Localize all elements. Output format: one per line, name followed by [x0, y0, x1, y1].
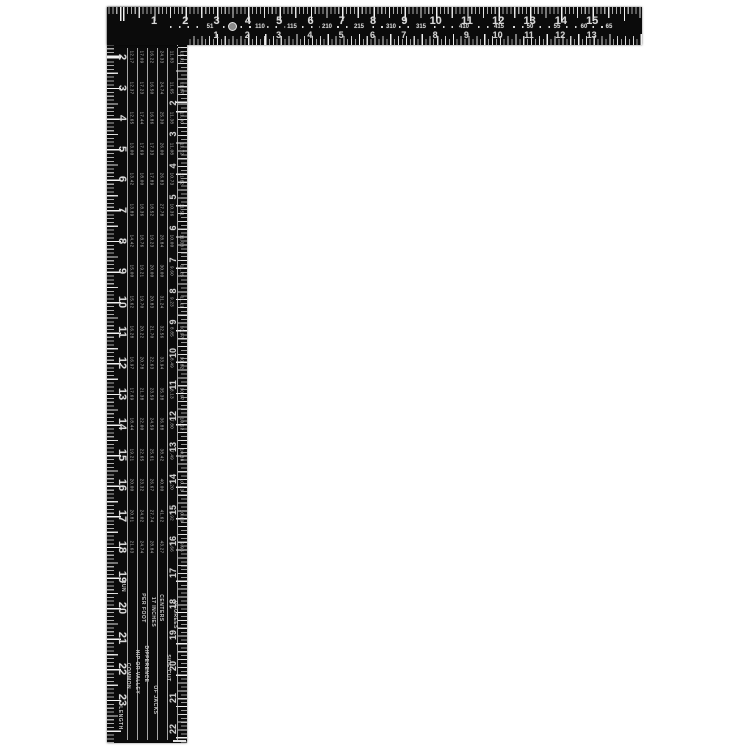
rafter-table-value: 10.09: [180, 510, 185, 523]
rafter-table-value: 32.56: [160, 326, 165, 339]
rafter-table-value: 21.70: [150, 326, 155, 339]
rafter-table-value: 17.33: [150, 142, 155, 155]
rafter-table-value: 17.89: [150, 173, 155, 186]
v-outer-inch-label: 9: [116, 268, 128, 274]
h-inner-inch-label: 1: [213, 30, 218, 40]
h-outer-inch-label: 2: [182, 15, 188, 27]
v-inner-inch-label: 3: [168, 132, 178, 137]
h-outer-inch-label: 6: [307, 15, 313, 27]
rafter-table-value: 6.66: [170, 542, 175, 552]
rafter-table-value: 28.84: [160, 234, 165, 247]
v-inner-inch-label: 11: [168, 380, 178, 390]
horizontal-arm: 123456789101112131415 511101152102153103…: [107, 7, 642, 45]
rafter-table-value: 12.65: [130, 112, 135, 125]
rafter-table-value: 33.94: [160, 357, 165, 370]
v-outer-inch-label: 12: [116, 357, 128, 369]
top-edge-fine-ticks: [107, 7, 642, 14]
rafter-table-heading: 17 INCHES: [150, 597, 156, 627]
rafter-table-heading: SIDE CUT: [165, 654, 171, 681]
rafter-table-value: 19.21: [140, 265, 145, 278]
rafter-table-value: 40.00: [160, 479, 165, 492]
h-middle-band-number: 210: [320, 24, 334, 30]
rafter-table-value: 16.97: [130, 357, 135, 370]
rafter-table-heading: CENTERS: [158, 594, 164, 621]
rafter-table-value: 11.25: [180, 265, 185, 277]
rafter-table-heading: LENGTH: [117, 706, 123, 730]
rafter-table-value: 16.22: [150, 51, 155, 64]
rafter-table-value: 30.00: [160, 265, 165, 278]
rafter-table-value: 41.62: [160, 510, 165, 523]
rafter-table-value: 21.38: [140, 387, 145, 400]
rafter-table-heading: PER FOOT: [140, 593, 146, 623]
h-outer-inch-label: 8: [370, 15, 376, 27]
rafter-table-value: 20.83: [150, 295, 155, 308]
rafter-table-value: 10.82: [180, 357, 185, 370]
h-inner-inch-label: 2: [245, 30, 250, 40]
rafter-table-heading: OF JACKS: [152, 685, 158, 714]
rafter-table-value: 26.67: [150, 479, 155, 492]
v-outer-inch-label: 7: [116, 207, 128, 213]
v-outer-inch-label: 17: [116, 510, 128, 522]
rafter-table-value: 11.38: [180, 234, 185, 246]
rafter-table-value: 12.37: [130, 81, 135, 94]
rafter-table-value: 10.23: [180, 479, 185, 492]
rafter-table-value: 18.36: [140, 204, 145, 217]
rafter-table-line: [157, 48, 158, 740]
rafter-table-value: 11.91: [180, 51, 185, 63]
rafter-table-heading: DEGREES: [172, 601, 178, 629]
rafter-table-value: 10.73: [170, 173, 175, 186]
rafter-table-value: 26.83: [160, 173, 165, 186]
v-outer-inch-label: 13: [116, 387, 128, 399]
rafter-table-value: 7.80: [170, 419, 175, 429]
bottom-edge-medium-ticks: [187, 36, 642, 45]
rafter-table-value: 16.28: [130, 326, 135, 339]
rafter-table-value: 13.42: [130, 173, 135, 186]
h-inner-inch-label: 4: [307, 30, 312, 40]
rafter-table-value: 19.21: [130, 448, 135, 461]
h-inner-inch-label: 8: [433, 30, 438, 40]
rafter-table-value: 12.17: [130, 51, 135, 64]
rafter-table-value: 20.81: [130, 510, 135, 523]
rafter-table-value: 16.50: [150, 81, 155, 94]
v-inner-inch-label: 6: [168, 226, 178, 231]
rafter-table-value: 13.00: [130, 142, 135, 155]
h-inner-inch-label: 3: [276, 30, 281, 40]
rafter-table-line: [137, 48, 138, 740]
v-outer-inch-label: 23: [116, 693, 128, 705]
rafter-table-value: 9.23: [170, 297, 175, 307]
h-inner-inch-label: 7: [401, 30, 406, 40]
rafter-table-value: 27.78: [160, 204, 165, 217]
rafter-table-heading: RUN: [120, 580, 126, 592]
h-inner-inch-label: 9: [464, 30, 469, 40]
rafter-table-value: 21.63: [130, 540, 135, 553]
h-middle-band-number: 115: [285, 24, 299, 30]
rafter-table-value: 17.09: [140, 51, 145, 64]
v-inner-inch-label: 19: [168, 630, 178, 640]
rafter-table-value: 10.97: [180, 326, 185, 339]
rafter-table-value: 18.44: [130, 418, 135, 431]
rafter-table-value: 10.67: [180, 387, 185, 400]
h-outer-inch-label: 4: [245, 15, 251, 27]
vertical-arm: 234567891011121314151617181920212223 234…: [107, 7, 187, 743]
rafter-table-value: 10.52: [180, 418, 185, 431]
rafter-table-value: 31.24: [160, 295, 165, 308]
rafter-table-value: 8.49: [170, 358, 175, 368]
h-inner-inch-label: 13: [587, 30, 597, 40]
rafter-table-value: 11.87: [180, 81, 185, 93]
v-inner-inch-label: 9: [168, 320, 178, 325]
v-outer-inch-label: 5: [116, 146, 128, 152]
rafter-table-value: 20.00: [150, 265, 155, 278]
rafter-table-value: 23.59: [150, 387, 155, 400]
v-outer-inch-label: 18: [116, 540, 128, 552]
v-inner-inch-label: 2: [168, 100, 178, 105]
h-outer-inch-label: 1: [151, 15, 157, 27]
v-inner-inch-label: 7: [168, 257, 178, 262]
rafter-table-value: 23.32: [140, 479, 145, 492]
rafter-table-value: 20.78: [140, 357, 145, 370]
rafter-table-value: 24.74: [160, 81, 165, 94]
rafter-table-value: 10.00: [170, 234, 175, 247]
v-inner-inch-label: 10: [168, 348, 178, 358]
v-outer-inch-label: 11: [116, 327, 128, 339]
rafter-table-value: 19.70: [140, 295, 145, 308]
rafter-table-value: 15.62: [130, 295, 135, 308]
v-outer-inch-label: 21: [116, 632, 128, 644]
rafter-table-value: 10.38: [180, 448, 185, 461]
rafter-table-heading: HIP OR VALLEY: [134, 650, 140, 694]
v-outer-inch-label: 6: [116, 176, 128, 182]
v-inner-inch-label: 21: [168, 693, 178, 703]
v-outer-inch-label: 16: [116, 479, 128, 491]
v-inner-inch-label: 5: [168, 194, 178, 199]
rafter-table-value: 17.69: [140, 142, 145, 155]
h-middle-band-number: 65: [604, 24, 615, 30]
h-middle-band-number: 310: [384, 24, 398, 30]
rafter-table-value: 20.22: [140, 326, 145, 339]
rafter-table-value: 18.00: [140, 173, 145, 186]
rafter-table-value: 36.88: [160, 418, 165, 431]
rafter-table-value: 19.23: [150, 234, 155, 247]
bottom-edge-fine-ticks: [187, 39, 642, 45]
rafter-table-value: 18.52: [150, 204, 155, 217]
rafter-table-value: 17.44: [140, 112, 145, 125]
rafter-table-value: 28.84: [150, 540, 155, 553]
h-middle-band-number: 110: [253, 24, 267, 30]
rafter-table-value: 14.42: [130, 234, 135, 247]
rafter-table-value: 24.59: [150, 418, 155, 431]
h-middle-band-number: 315: [414, 24, 428, 30]
v-outer-inch-label: 8: [116, 238, 128, 244]
rafter-table-value: 8.13: [170, 389, 175, 399]
rafter-table-value: 11.11: [180, 296, 185, 308]
v-outer-inch-label: 14: [116, 418, 128, 430]
v-outer-inch-label: 4: [116, 115, 128, 121]
rafter-table-value: 35.38: [160, 387, 165, 400]
rafter-table-value: 22.65: [140, 448, 145, 461]
v-inner-inch-label: 8: [168, 288, 178, 293]
bottom-edge-inch-ticks: [187, 34, 642, 45]
rafter-table-value: 38.42: [160, 448, 165, 461]
rafter-table-value: 11.65: [170, 81, 175, 93]
rafter-table-value: 7.49: [170, 450, 175, 460]
rafter-table-value: 11.08: [170, 143, 175, 155]
rafter-table-value: 11.51: [180, 204, 185, 216]
rafter-table-value: 18.76: [140, 234, 145, 247]
end-tick-mark: [173, 740, 186, 742]
rafter-table-value: 20.00: [130, 479, 135, 492]
rafter-table-line: [147, 48, 148, 740]
h-outer-inch-label: 7: [339, 15, 345, 27]
product-photo-framing-square: { "product": { "description": "Black ste…: [0, 0, 750, 750]
rafter-table-value: 24.02: [140, 510, 145, 523]
rafter-table-value: 24.74: [140, 540, 145, 553]
outer-edge-fine-ticks: [107, 7, 114, 743]
h-inner-inch-label: 11: [524, 30, 534, 40]
rafter-table-value: 10.36: [170, 204, 175, 217]
h-inner-inch-label: 6: [370, 30, 375, 40]
h-inner-inch-label: 5: [339, 30, 344, 40]
rafter-table-heading: DIFFERENCE: [143, 646, 149, 683]
rafter-table-value: 8.85: [170, 327, 175, 337]
rafter-table-value: 22.63: [150, 357, 155, 370]
rafter-table-heading: COMMON: [125, 663, 131, 689]
rafter-table-value: 11.72: [180, 143, 185, 155]
rafter-table-value: 11.80: [180, 112, 185, 124]
rafter-table-value: 17.23: [140, 81, 145, 94]
v-inner-inch-label: 4: [168, 163, 178, 168]
rafter-table-value: 24.33: [160, 51, 165, 64]
v-outer-inch-label: 10: [116, 296, 128, 308]
v-outer-inch-label: 20: [116, 602, 128, 614]
v-inner-inch-label: 17: [168, 567, 178, 577]
rafter-table-value: 26.00: [160, 142, 165, 155]
h-middle-band-number: 215: [352, 24, 366, 30]
rafter-table-value: 13.89: [130, 204, 135, 217]
rafter-table-value: 11.62: [180, 173, 185, 185]
rafter-table-value: 16.86: [150, 112, 155, 125]
rafter-table-value: 7.20: [170, 480, 175, 490]
rafter-table-value: 17.69: [130, 387, 135, 400]
h-outer-inch-label: 10: [430, 15, 442, 27]
rafter-table-value: 43.27: [160, 540, 165, 553]
rafter-table-value: 25.30: [160, 112, 165, 125]
rafter-table-value: 22.00: [140, 418, 145, 431]
rafter-table-value: 11.38: [170, 112, 175, 124]
rafter-table-value: 9.96: [180, 542, 185, 552]
v-inner-inch-label: 22: [168, 724, 178, 734]
v-outer-inch-label: 15: [116, 449, 128, 461]
rafter-table-value: 25.61: [150, 448, 155, 461]
v-outer-inch-label: 2: [116, 54, 128, 60]
v-outer-inch-label: 3: [116, 85, 128, 91]
h-inner-inch-label: 12: [555, 30, 565, 40]
rafter-table-value: 6.92: [170, 511, 175, 521]
hang-hole-icon: [228, 22, 237, 31]
rafter-table-value: 15.00: [130, 265, 135, 278]
h-outer-inch-label: 5: [276, 15, 282, 27]
h-inner-inch-label: 10: [493, 30, 503, 40]
h-outer-inch-label: 9: [401, 15, 407, 27]
rafter-table-value: 9.60: [170, 266, 175, 276]
rafter-table-value: 27.74: [150, 510, 155, 523]
rafter-table-value: 11.83: [170, 51, 175, 63]
